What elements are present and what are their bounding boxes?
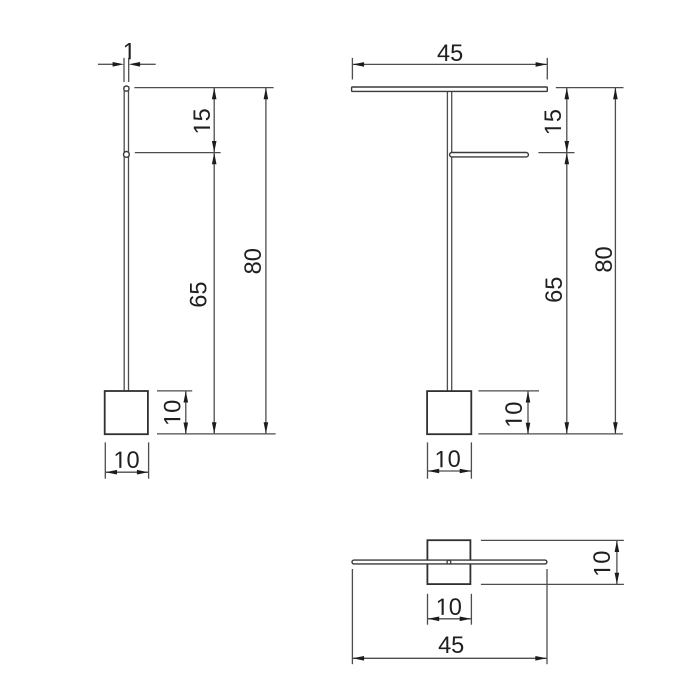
svg-text:0: 0 <box>127 448 140 474</box>
svg-text:0: 0 <box>449 595 462 621</box>
svg-text:0: 0 <box>448 447 461 473</box>
svg-text:0: 0 <box>160 400 186 413</box>
svg-text:80: 80 <box>592 246 618 272</box>
svg-text:45: 45 <box>437 41 463 67</box>
svg-text:65: 65 <box>542 277 568 303</box>
svg-text:0: 0 <box>590 551 616 564</box>
svg-text:5: 5 <box>541 109 567 122</box>
svg-text:80: 80 <box>241 248 267 274</box>
svg-text:65: 65 <box>187 281 213 307</box>
svg-text:5: 5 <box>190 108 216 121</box>
svg-text:0: 0 <box>502 402 528 415</box>
svg-text:45: 45 <box>438 633 464 659</box>
